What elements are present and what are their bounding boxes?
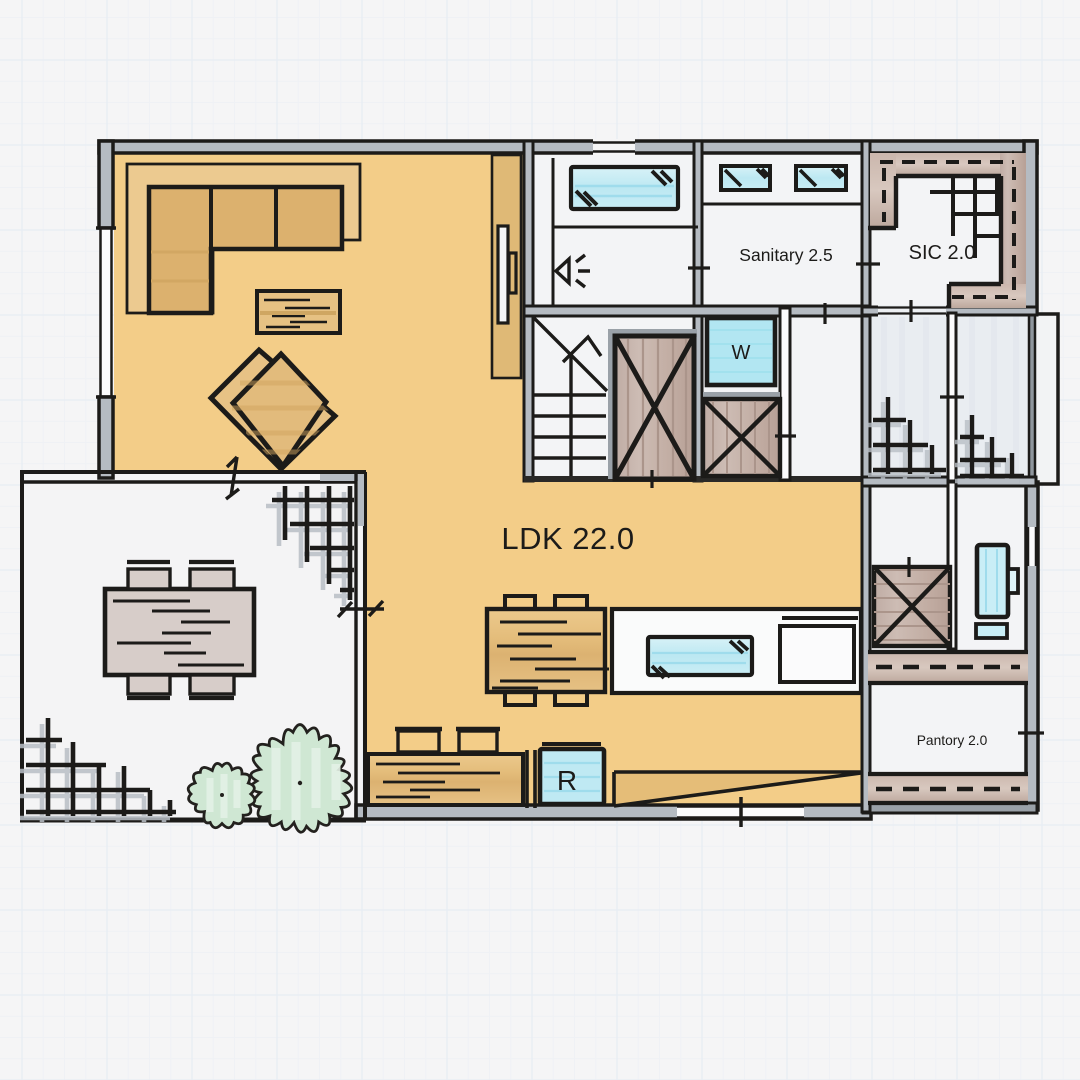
svg-text:SIC 2.0: SIC 2.0 (909, 242, 976, 264)
svg-text:R: R (557, 765, 577, 796)
svg-text:Sanitary 2.5: Sanitary 2.5 (739, 245, 832, 265)
svg-text:Pantory 2.0: Pantory 2.0 (917, 733, 988, 748)
svg-text:W: W (732, 342, 751, 364)
svg-text:LDK 22.0: LDK 22.0 (501, 521, 634, 556)
